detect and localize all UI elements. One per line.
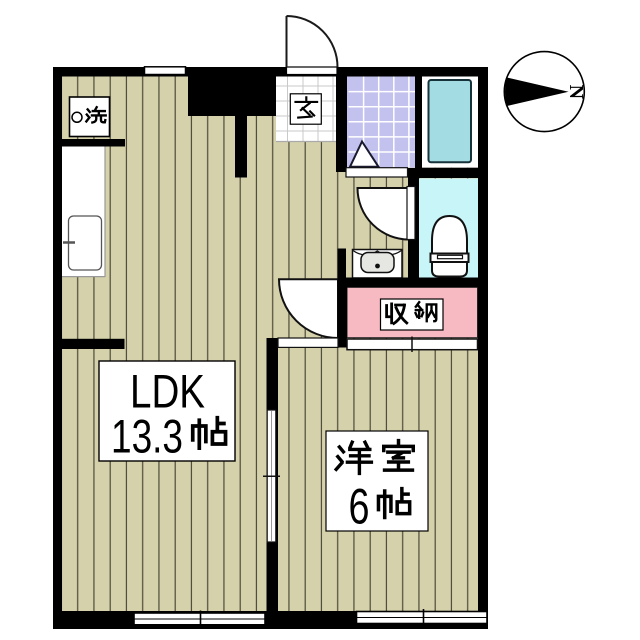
svg-text:13.3: 13.3 — [111, 410, 183, 463]
svg-text:N: N — [565, 85, 587, 100]
svg-text:6: 6 — [349, 479, 370, 535]
